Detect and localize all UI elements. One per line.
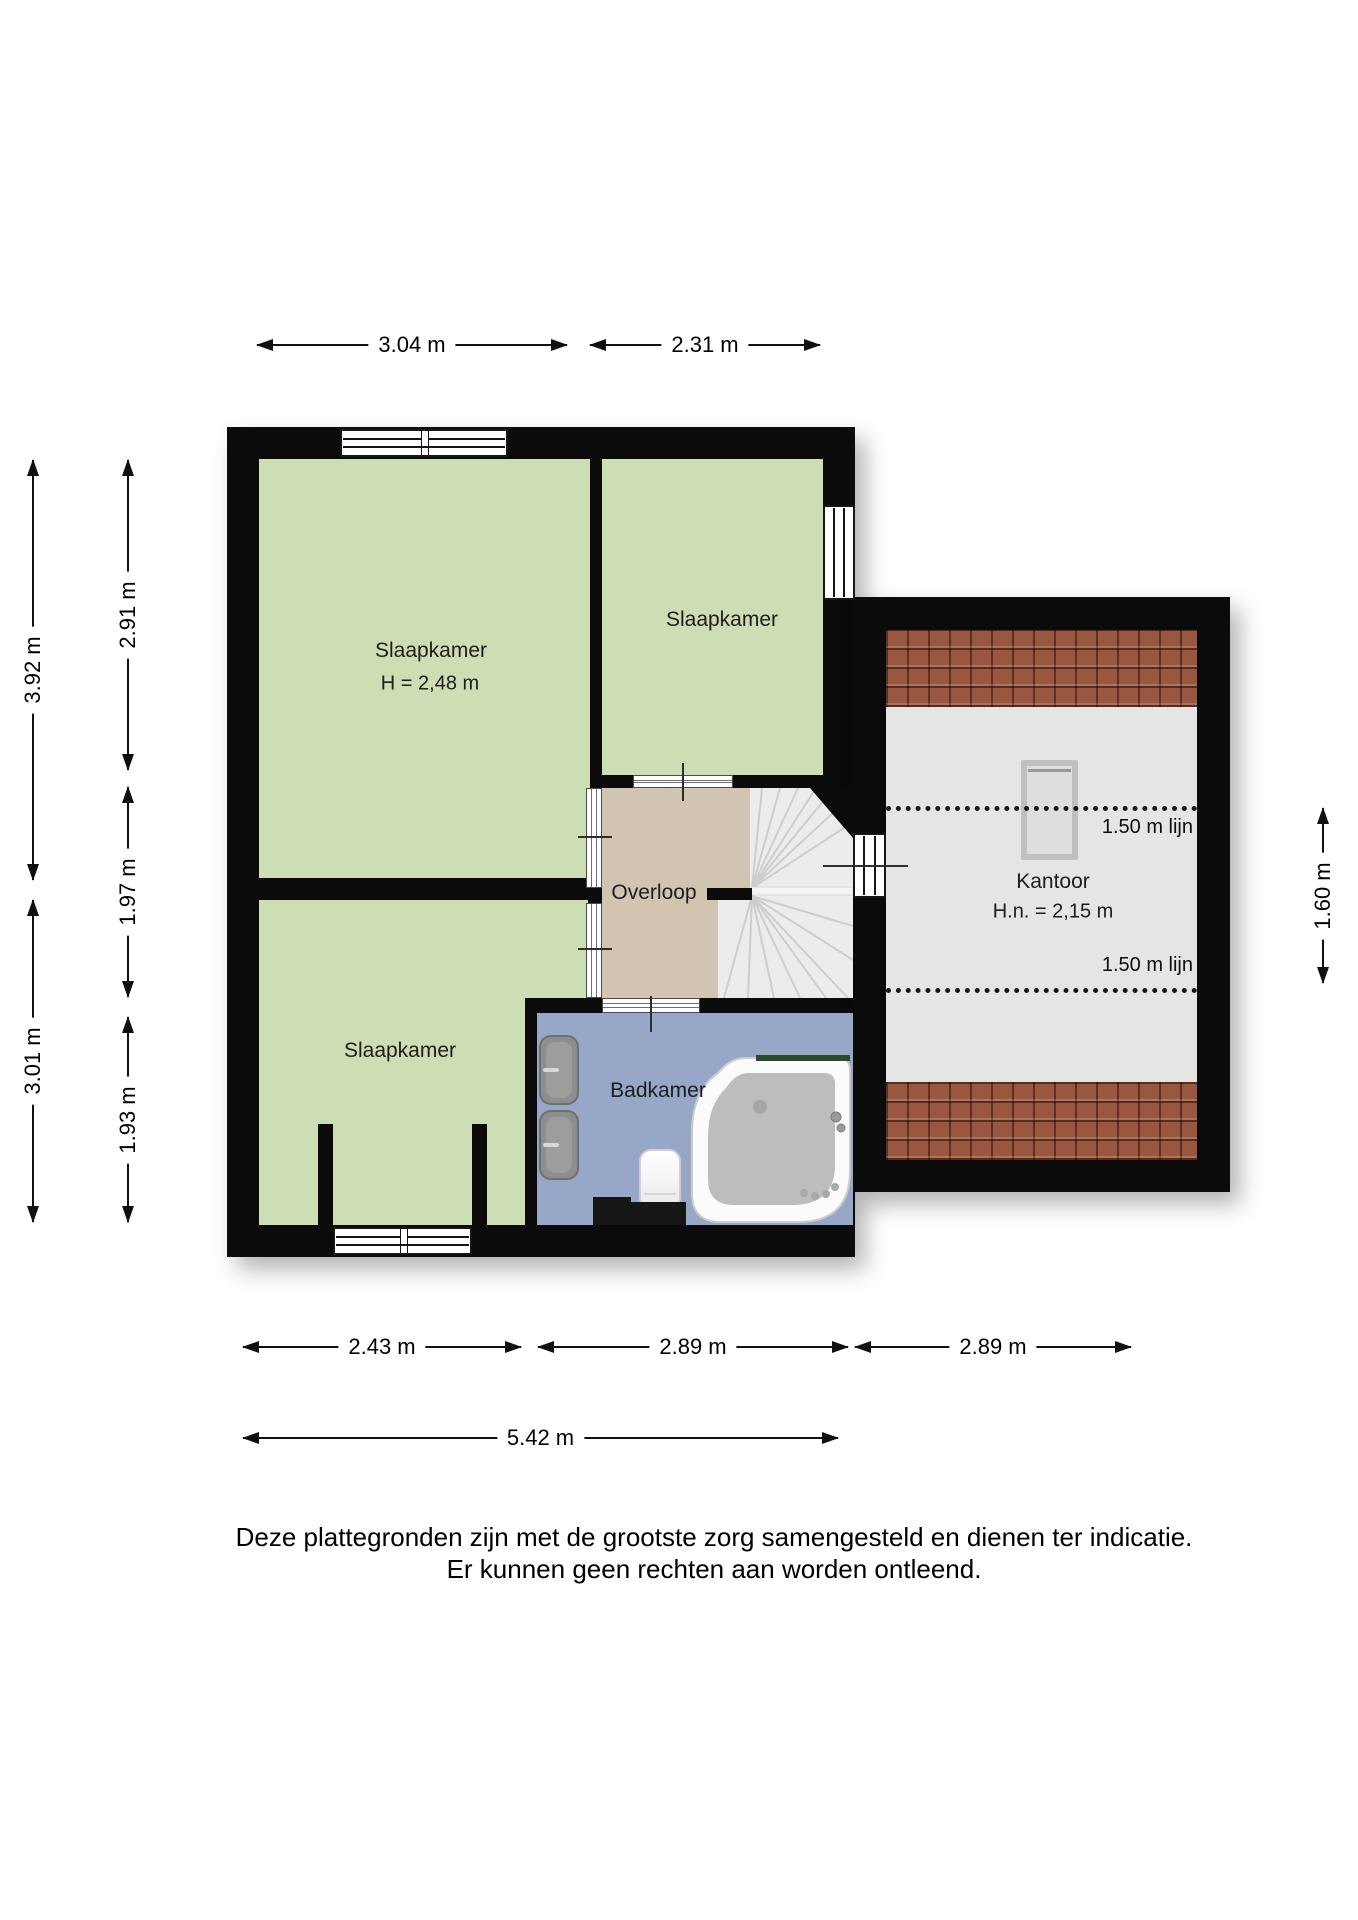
dimension-bottom-289a: 2.89 m — [538, 1346, 848, 1348]
corner-bathtub — [688, 1055, 853, 1225]
arrow-up-icon — [122, 459, 134, 476]
stair-landing-wall-stub — [707, 888, 752, 900]
toilet — [639, 1149, 681, 1207]
arrow-up-icon — [122, 786, 134, 803]
arrow-down-icon — [1317, 967, 1329, 984]
room-height-bedroom-main: H = 2,48 m — [381, 673, 479, 696]
room-label-office: Kantoor — [1016, 870, 1090, 894]
dormer-wall-right — [472, 1124, 487, 1225]
door-bedroom-bottom-landing — [586, 903, 602, 998]
room-label-bedroom-bottom: Slaapkamer — [344, 1039, 456, 1063]
window-top-bedroom-main — [340, 429, 508, 457]
arrow-down-icon — [122, 1206, 134, 1223]
roofline-dotted-bottom — [886, 988, 1197, 993]
dimension-bottom-total: 5.42 m — [243, 1437, 838, 1439]
arrow-down-icon — [27, 1206, 39, 1223]
sink — [539, 1035, 579, 1105]
dimension-left-392: 3.92 m — [32, 460, 34, 880]
door-tick — [578, 948, 612, 950]
window-mullion — [400, 1229, 408, 1253]
arrow-down-icon — [122, 754, 134, 771]
arrow-left-icon — [242, 1341, 259, 1353]
window-bottom-bedroom — [333, 1227, 472, 1255]
arrow-right-icon — [832, 1341, 849, 1353]
bathroom-cabinet — [593, 1197, 631, 1225]
arrow-right-icon — [804, 339, 821, 351]
dimension-top-right: 2.31 m — [590, 344, 820, 346]
arrow-up-icon — [27, 899, 39, 916]
faucet-icon — [543, 1143, 559, 1147]
arrow-down-icon — [122, 981, 134, 998]
arrow-down-icon — [27, 864, 39, 881]
dimension-bottom-243: 2.43 m — [243, 1346, 521, 1348]
dimension-left-193: 1.93 m — [127, 1017, 129, 1222]
roofline-label-top: 1.50 m lijn — [886, 816, 1193, 839]
office-roof-tiles-bottom — [886, 1082, 1197, 1160]
arrow-right-icon — [551, 339, 568, 351]
dimension-left-291: 2.91 m — [127, 460, 129, 770]
arrow-left-icon — [589, 339, 606, 351]
roofline-dotted-top — [886, 806, 1197, 811]
dimension-left-197: 1.97 m — [127, 787, 129, 997]
arrow-right-icon — [1115, 1341, 1132, 1353]
arrow-left-icon — [854, 1341, 871, 1353]
disclaimer-line-2: Er kunnen geen rechten aan worden ontlee… — [0, 1554, 1358, 1584]
window-mullion — [421, 431, 429, 455]
arrow-up-icon — [1317, 807, 1329, 824]
room-label-bedroom-top: Slaapkamer — [666, 608, 778, 632]
door-tick — [650, 996, 652, 1032]
floorplan-page: 1.50 m lijn 1.50 m lijn Slaapkamer H = 2… — [0, 0, 1358, 1920]
door-bedroom-main-landing — [586, 788, 602, 888]
office-roof-tiles-top — [886, 630, 1197, 707]
room-label-bedroom-main: Slaapkamer — [375, 639, 487, 663]
arrow-left-icon — [242, 1432, 259, 1444]
arrow-left-icon — [256, 339, 273, 351]
window-bedroom-top-right — [823, 505, 855, 600]
dimension-bottom-289b: 2.89 m — [855, 1346, 1131, 1348]
stairwell-section-line — [823, 865, 908, 867]
dimension-top-left: 3.04 m — [257, 344, 567, 346]
room-bedroom-main — [259, 459, 590, 878]
dimension-right-160: 1.60 m — [1322, 808, 1324, 983]
arrow-left-icon — [537, 1341, 554, 1353]
arrow-up-icon — [122, 1016, 134, 1033]
arrow-right-icon — [822, 1432, 839, 1444]
door-tick — [578, 836, 612, 838]
bath-shelf — [756, 1055, 850, 1061]
bathroom-cabinet — [629, 1202, 686, 1225]
faucet-icon — [543, 1068, 559, 1072]
disclaimer-line-1: Deze plattegronden zijn met de grootste … — [0, 1522, 1358, 1552]
room-height-office: H.n. = 2,15 m — [993, 901, 1114, 924]
door-tick — [682, 763, 684, 801]
room-bedroom-bottom-east — [259, 900, 588, 998]
room-label-landing: Overloop — [611, 881, 696, 905]
arrow-right-icon — [505, 1341, 522, 1353]
dimension-left-301: 3.01 m — [32, 900, 34, 1222]
room-label-bathroom: Badkamer — [610, 1079, 706, 1103]
sink — [539, 1110, 579, 1180]
roofline-label-bottom: 1.50 m lijn — [886, 954, 1193, 977]
arrow-up-icon — [27, 459, 39, 476]
dormer-wall-left — [318, 1124, 333, 1225]
